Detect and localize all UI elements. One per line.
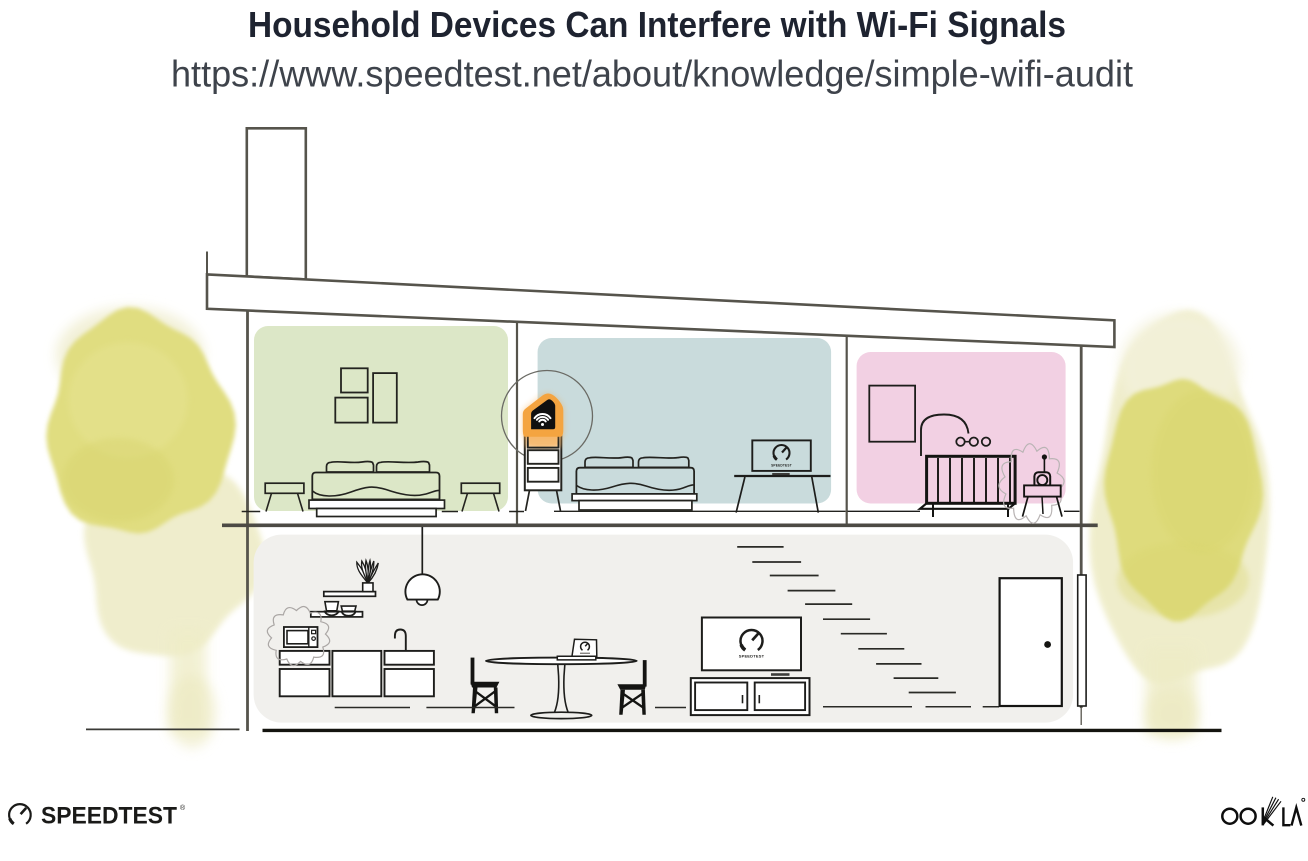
svg-text:SPEEDTEST: SPEEDTEST [41,803,177,830]
svg-text:®: ® [180,804,186,812]
svg-text:https://www.speedtest.net/abou: https://www.speedtest.net/about/knowledg… [171,54,1134,95]
svg-text:SPEEDTEST: SPEEDTEST [739,654,765,659]
svg-text:Household Devices Can Interfer: Household Devices Can Interfere with Wi-… [248,4,1066,45]
svg-text:SPEEDTEST: SPEEDTEST [771,464,792,468]
